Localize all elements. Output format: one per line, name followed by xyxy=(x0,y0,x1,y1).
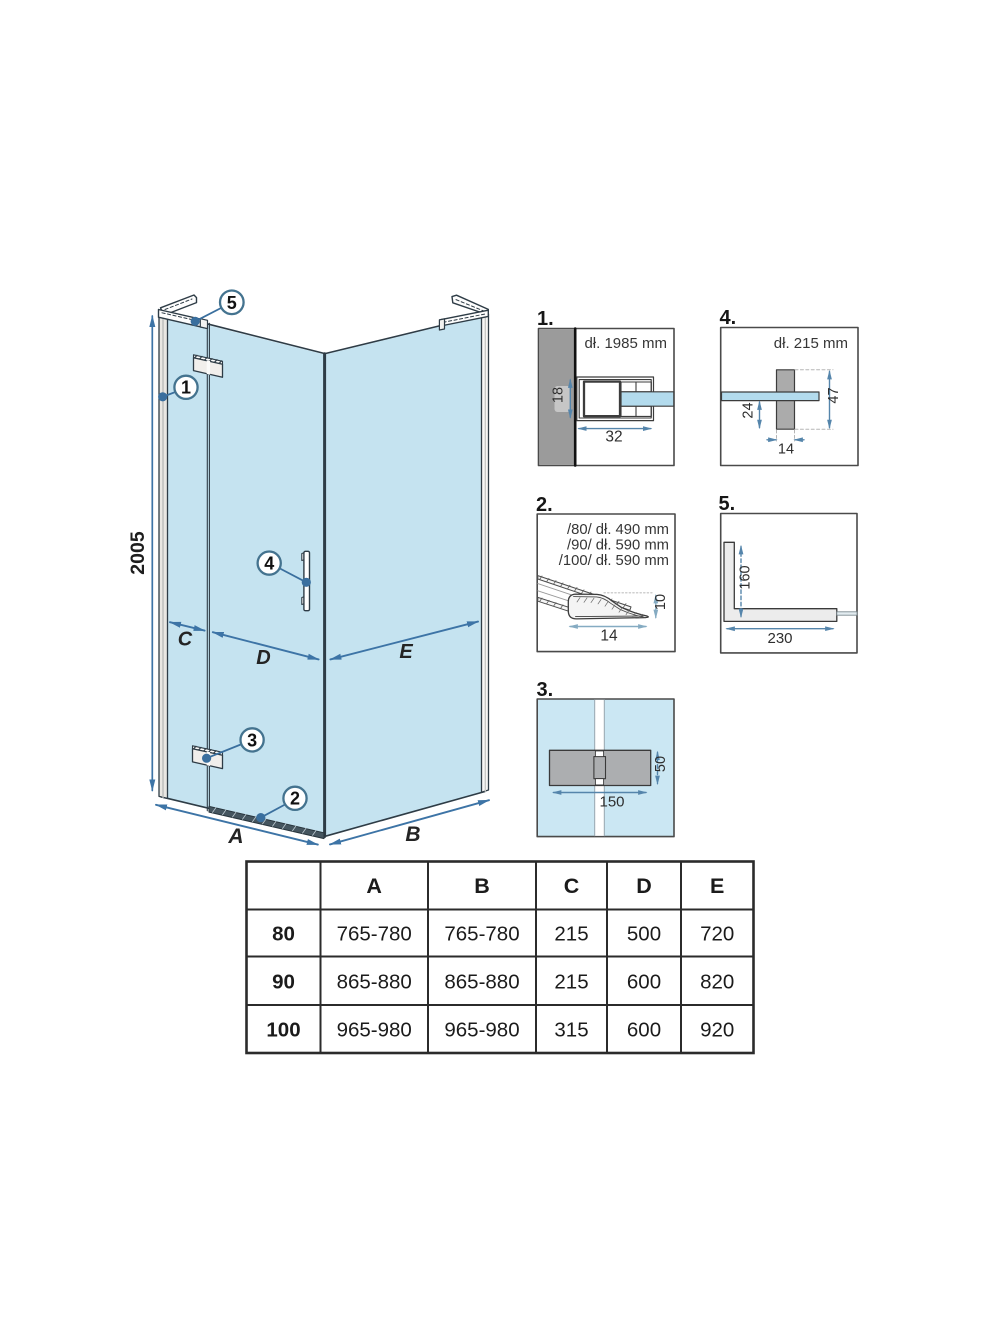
svg-text:1: 1 xyxy=(181,378,191,398)
svg-text:5.: 5. xyxy=(719,493,736,515)
svg-text:C: C xyxy=(178,629,193,651)
svg-text:5: 5 xyxy=(227,293,237,313)
svg-text:765-780: 765-780 xyxy=(337,923,412,946)
svg-text:500: 500 xyxy=(627,923,661,946)
svg-text:150: 150 xyxy=(599,794,624,811)
svg-text:47: 47 xyxy=(826,387,842,403)
svg-text:4: 4 xyxy=(264,554,274,574)
svg-text:2.: 2. xyxy=(536,494,553,516)
svg-text:865-880: 865-880 xyxy=(444,971,519,994)
svg-text:215: 215 xyxy=(554,971,588,994)
svg-text:2: 2 xyxy=(290,789,300,809)
svg-text:820: 820 xyxy=(700,971,734,994)
svg-text:D: D xyxy=(636,874,652,898)
svg-text:10: 10 xyxy=(653,594,669,610)
svg-text:4.: 4. xyxy=(720,307,737,329)
svg-text:B: B xyxy=(405,823,420,846)
svg-text:80: 80 xyxy=(272,923,295,946)
svg-text:600: 600 xyxy=(627,1019,661,1042)
svg-text:C: C xyxy=(564,874,580,898)
svg-text:965-980: 965-980 xyxy=(444,1019,519,1042)
svg-text:E: E xyxy=(399,641,413,663)
svg-text:920: 920 xyxy=(700,1019,734,1042)
svg-text:720: 720 xyxy=(700,923,734,946)
svg-text:/80/ dł. 490 mm: /80/ dł. 490 mm xyxy=(567,522,669,538)
svg-text:1.: 1. xyxy=(537,308,554,330)
svg-text:D: D xyxy=(256,647,270,669)
svg-text:B: B xyxy=(474,874,490,898)
svg-text:dł. 215 mm: dł. 215 mm xyxy=(774,335,848,352)
svg-text:14: 14 xyxy=(600,628,618,645)
svg-text:E: E xyxy=(710,874,724,898)
svg-text:90: 90 xyxy=(272,971,295,994)
svg-text:/100/ dł. 590 mm: /100/ dł. 590 mm xyxy=(559,553,669,569)
svg-text:765-780: 765-780 xyxy=(444,923,519,946)
svg-text:160: 160 xyxy=(738,565,754,589)
svg-text:14: 14 xyxy=(778,442,794,458)
svg-text:965-980: 965-980 xyxy=(337,1019,412,1042)
svg-text:18: 18 xyxy=(551,387,567,403)
svg-text:3: 3 xyxy=(247,730,257,750)
svg-text:3.: 3. xyxy=(537,679,554,701)
svg-text:2005: 2005 xyxy=(127,531,149,575)
svg-text:230: 230 xyxy=(767,630,792,647)
svg-text:315: 315 xyxy=(554,1019,588,1042)
svg-text:dł. 1985 mm: dł. 1985 mm xyxy=(584,335,667,352)
svg-text:32: 32 xyxy=(605,429,622,446)
svg-text:50: 50 xyxy=(653,756,669,772)
svg-text:/90/ dł. 590 mm: /90/ dł. 590 mm xyxy=(567,538,669,554)
svg-text:A: A xyxy=(227,825,243,848)
svg-text:24: 24 xyxy=(741,402,757,418)
svg-text:600: 600 xyxy=(627,971,661,994)
svg-text:865-880: 865-880 xyxy=(337,971,412,994)
svg-text:100: 100 xyxy=(266,1019,300,1042)
svg-text:215: 215 xyxy=(554,923,588,946)
svg-text:A: A xyxy=(366,874,382,898)
